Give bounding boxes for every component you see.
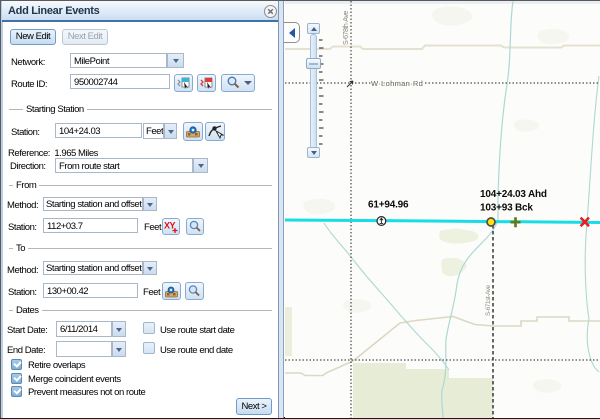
svg-text:S‐671st‐Ave: S‐671st‐Ave [485,284,492,316]
svg-text:W·Lohman·Rd: W·Lohman·Rd [371,79,423,88]
svg-text:103+93 Bck: 103+93 Bck [480,203,533,214]
svg-text:104+24.03 Ahd: 104+24.03 Ahd [480,189,547,200]
svg-text:XY: XY [164,221,176,231]
svg-text:S‐678th·Ave: S‐678th·Ave [343,11,350,45]
svg-text:61+94.96: 61+94.96 [368,200,409,211]
